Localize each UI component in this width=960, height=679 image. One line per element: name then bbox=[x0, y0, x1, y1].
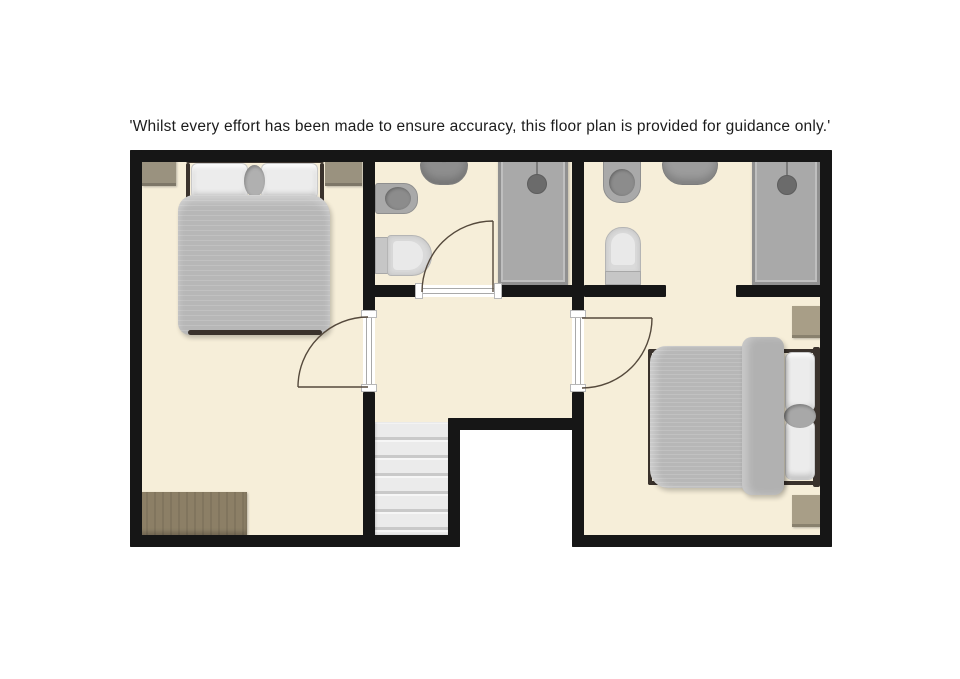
bedroom1-bed-duvet bbox=[178, 195, 330, 335]
bathroom2-bidet-bowl bbox=[609, 169, 635, 196]
wall-notch-top bbox=[448, 418, 584, 430]
wall-right bbox=[820, 150, 832, 547]
bedroom1-nightstand-left bbox=[142, 158, 176, 186]
bedroom1-nightstand-right bbox=[325, 158, 362, 186]
bedroom1-dresser bbox=[138, 492, 247, 535]
bedroom1-center-cushion bbox=[244, 165, 265, 197]
bedroom1-door-threshold bbox=[363, 311, 375, 392]
bathroom1-door-threshold bbox=[416, 285, 501, 297]
bedroom2-bed-throw bbox=[742, 337, 784, 495]
bedroom2-door-threshold bbox=[572, 311, 584, 392]
bedroom2-door-jamb-bottom bbox=[570, 384, 586, 392]
bathroom2-toilet-cistern bbox=[605, 271, 641, 285]
wall-bathroom1-bottom-right bbox=[501, 285, 584, 297]
wall-bottom-left bbox=[130, 535, 460, 547]
bedroom1-door-jamb-top bbox=[361, 310, 377, 318]
bedroom1-pillow-left bbox=[191, 163, 248, 199]
bedroom2-center-cushion bbox=[784, 404, 816, 428]
disclaimer-text: 'Whilst every effort has been made to en… bbox=[0, 118, 960, 136]
wall-left bbox=[130, 150, 142, 547]
bathroom1-door-jamb-right bbox=[494, 283, 502, 299]
bedroom2-pillow-top bbox=[785, 352, 815, 412]
stairwell-notch bbox=[460, 430, 572, 547]
wall-top bbox=[130, 150, 832, 162]
bathroom1-bidet-bowl bbox=[385, 187, 411, 210]
bathroom1-shower-head bbox=[527, 174, 547, 194]
wall-bottom-right bbox=[572, 535, 832, 547]
floorplan-page: 'Whilst every effort has been made to en… bbox=[0, 0, 960, 679]
wall-bedroom1-divider-lower bbox=[363, 392, 375, 547]
bathroom2-toilet-seat bbox=[611, 233, 635, 265]
wall-bathroom2-bottom-left bbox=[584, 285, 666, 297]
floor-plan bbox=[130, 150, 832, 547]
bedroom2-pillow-bottom bbox=[785, 420, 815, 480]
bedroom1-bed-footrail bbox=[188, 330, 322, 335]
wall-bathroom2-bottom-right bbox=[736, 285, 832, 297]
bedroom2-door-jamb-top bbox=[570, 310, 586, 318]
bedroom2-nightstand-top bbox=[792, 306, 820, 338]
wall-bathroom1-bottom-left bbox=[363, 285, 416, 297]
bedroom2-nightstand-bottom bbox=[792, 495, 820, 527]
bathroom1-toilet-seat bbox=[393, 241, 423, 270]
bathroom1-door-jamb-left bbox=[415, 283, 423, 299]
bedroom1-pillow-right bbox=[261, 163, 318, 199]
wall-mid-divider-lower bbox=[572, 392, 584, 547]
bedroom1-door-jamb-bottom bbox=[361, 384, 377, 392]
bathroom2-shower-head bbox=[777, 175, 797, 195]
staircase bbox=[375, 422, 448, 535]
wall-notch-left bbox=[448, 418, 460, 547]
